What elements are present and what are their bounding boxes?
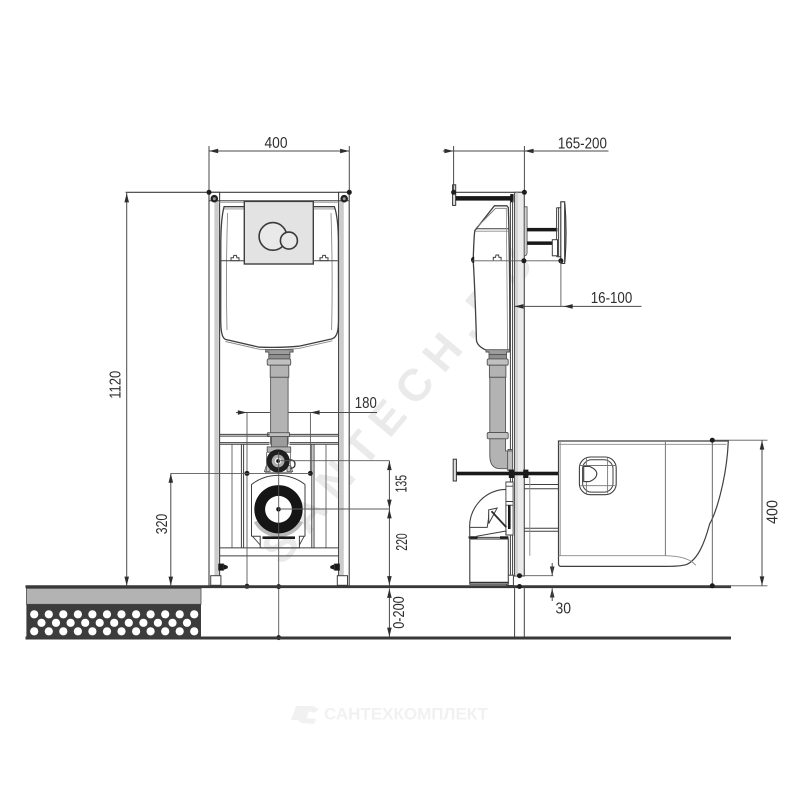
svg-text:320: 320 bbox=[154, 514, 171, 535]
svg-text:180: 180 bbox=[355, 395, 377, 412]
svg-text:0-200: 0-200 bbox=[391, 596, 408, 629]
svg-text:САНТЕХКОМПЛЕКТ: САНТЕХКОМПЛЕКТ bbox=[324, 705, 489, 724]
svg-text:135: 135 bbox=[394, 475, 411, 493]
svg-text:1120: 1120 bbox=[108, 371, 125, 399]
svg-text:30: 30 bbox=[556, 601, 572, 618]
svg-text:165-200: 165-200 bbox=[558, 135, 607, 152]
svg-text:220: 220 bbox=[394, 533, 411, 551]
svg-text:400: 400 bbox=[265, 135, 288, 152]
svg-text:16-100: 16-100 bbox=[591, 290, 633, 307]
svg-text:400: 400 bbox=[764, 500, 781, 524]
